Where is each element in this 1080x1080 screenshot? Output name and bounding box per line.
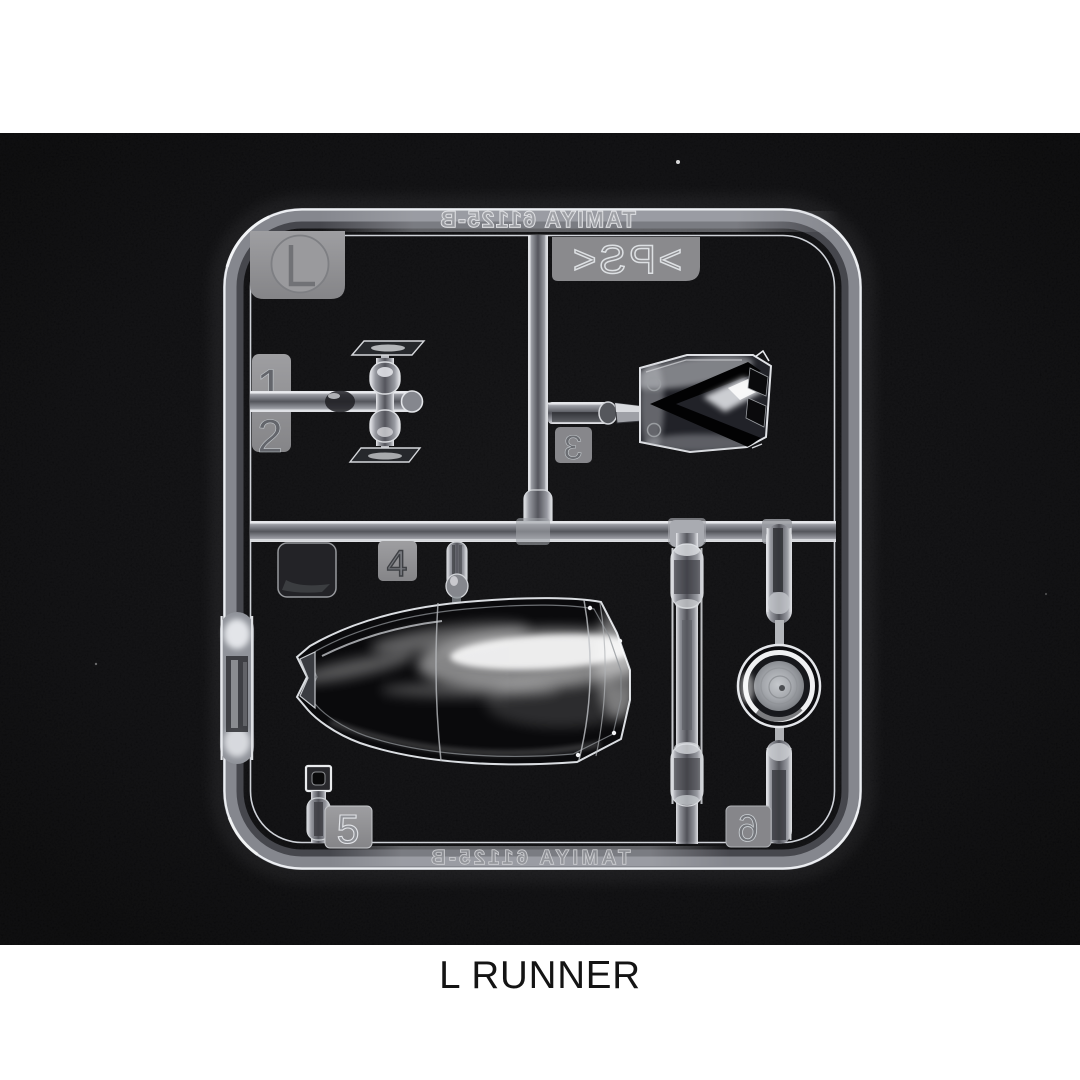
svg-text:TAMIYA 61125-B: TAMIYA 61125-B <box>428 847 631 869</box>
svg-text:5: 5 <box>337 806 360 852</box>
svg-text:>PS<: >PS< <box>570 238 682 282</box>
svg-text:4: 4 <box>387 543 408 584</box>
svg-text:L RUNNER: L RUNNER <box>439 954 641 997</box>
svg-text:TAMIYA 61125-B: TAMIYA 61125-B <box>438 207 635 232</box>
svg-text:6: 6 <box>737 808 758 850</box>
svg-text:3: 3 <box>564 429 583 467</box>
svg-text:2: 2 <box>257 410 283 462</box>
